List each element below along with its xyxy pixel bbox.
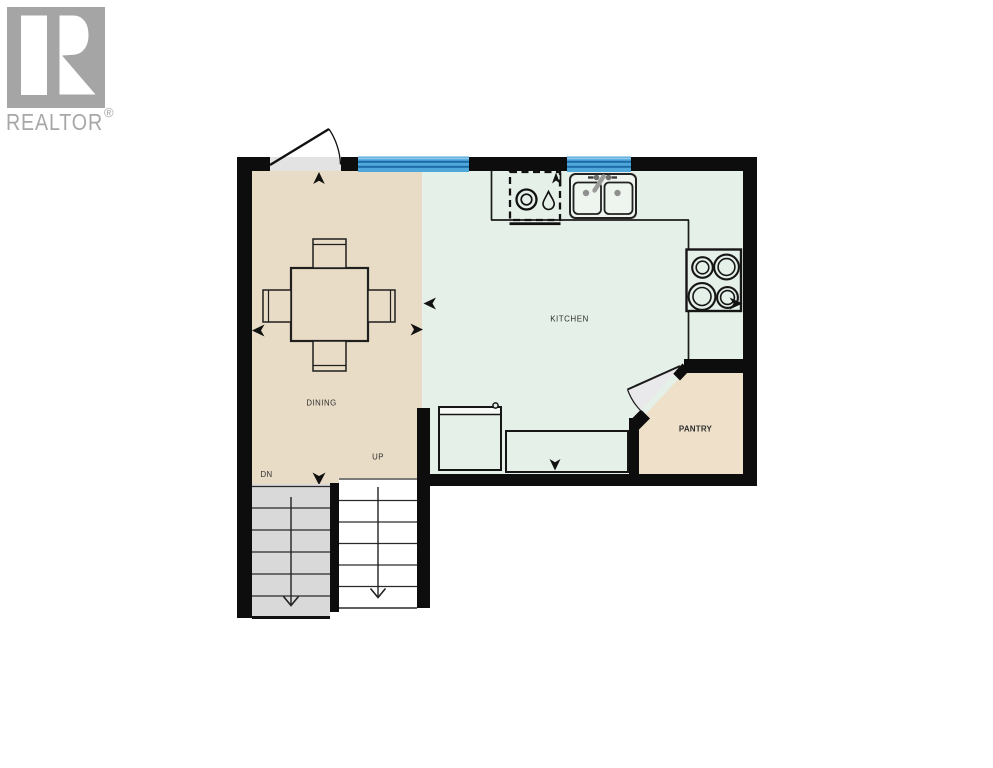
- svg-text:KITCHEN: KITCHEN: [550, 315, 589, 324]
- svg-text:DINING: DINING: [306, 399, 336, 408]
- svg-text:REALTOR: REALTOR: [6, 109, 103, 135]
- svg-text:DN: DN: [260, 470, 272, 479]
- svg-text:®: ®: [104, 105, 114, 120]
- svg-text:UP: UP: [372, 453, 384, 462]
- svg-text:PANTRY: PANTRY: [679, 425, 713, 434]
